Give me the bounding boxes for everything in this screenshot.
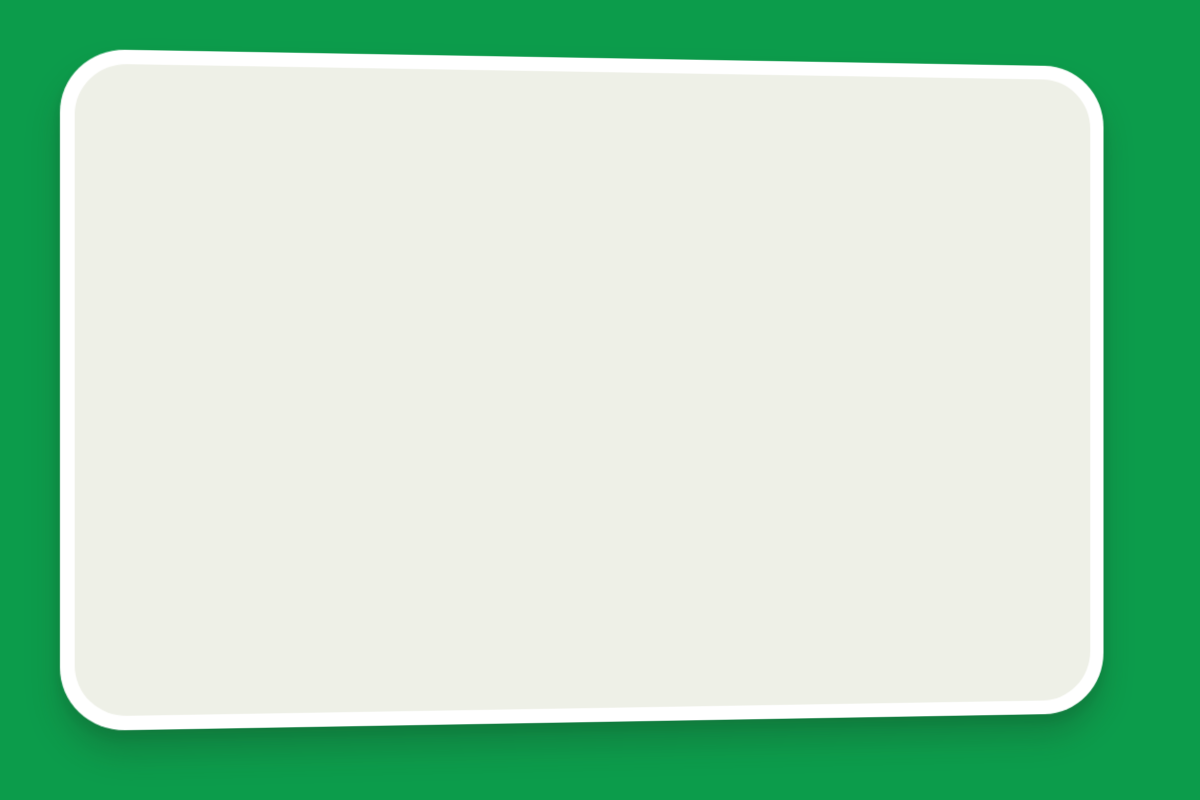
site-plan-map [75, 63, 1091, 716]
plan-card [60, 49, 1104, 732]
page: { "title": "WOONBLOK H", "colors": { "gr… [0, 0, 1200, 800]
